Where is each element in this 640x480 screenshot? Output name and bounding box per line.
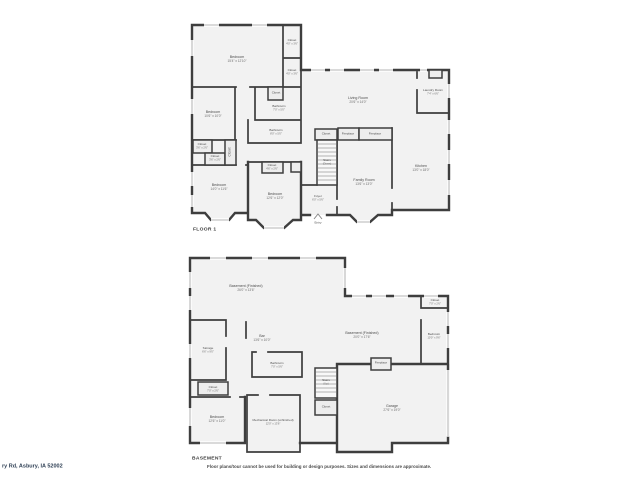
room-label-kitchen: Kitchen13'0" x 18'0" <box>412 164 429 173</box>
room-label-bathroom-1: Bathroom7'0" x 5'0" <box>272 104 285 111</box>
room-label-closet-4: Closet3'6" x 2'6" <box>196 142 208 149</box>
room-label-closet-basement-3: Closet <box>322 405 331 409</box>
room-label-bedroom-3: Bedroom14'0" x 11'6" <box>210 183 227 192</box>
label-fireplace-basement: Fireplace <box>375 361 388 365</box>
room-label-storage: Storage6'6" x 9'0" <box>202 346 214 353</box>
room-label-mechanical-room: Mechanical Room (unfinished)12'0" x 13'6… <box>252 418 293 425</box>
room-label-stairs-down: Stairs(Down) <box>323 158 332 165</box>
room-label-bedroom-2: Bedroom10'6" x 10'0" <box>204 110 221 119</box>
label-fireplace-2: Fireplace <box>369 132 382 136</box>
room-label-laundry-room: Laundry Room7'4" x 6'6" <box>423 88 443 95</box>
room-label-closet-basement-2: Closet7'0" x 2'6" <box>207 385 219 392</box>
room-label-bedroom-basement-1: Bedroom10'0" x 9'6" <box>427 332 440 339</box>
room-label-bedroom-1: Bedroom15'4" x 12'10" <box>227 55 246 64</box>
room-label-basement-finished-2: Basement (Finished)20'0" x 17'6" <box>345 331 378 340</box>
room-label-closet-3: Closet <box>272 91 281 95</box>
room-label-family-room: Family Room13'6" x 13'0" <box>353 178 374 187</box>
room-label-basement-finished-1: Basement (Finished)26'0" x 13'6" <box>229 284 262 293</box>
room-label-living-room: Living Room20'6" x 14'0" <box>348 96 368 105</box>
room-label-closet-7: Closet4'6" x 2'6" <box>266 163 278 170</box>
room-label-bathroom-2: Bathroom8'0" x 5'0" <box>269 128 282 135</box>
floorplan-page: Bedroom15'4" x 12'10" Closet4'0" x 3'6" … <box>0 0 640 480</box>
room-label-closet-5: Closet3'6" x 2'6" <box>209 154 221 161</box>
label-entry: Entry <box>314 221 321 225</box>
floor1-title: FLOOR 1 <box>193 226 216 232</box>
room-label-bedroom-4: Bedroom12'6" x 12'0" <box>266 192 283 201</box>
room-label-closet-2: Closet4'0" x 3'6" <box>286 68 298 75</box>
room-label-foyer: Foyer6'0" x 5'6" <box>312 194 324 201</box>
label-fireplace-1: Fireplace <box>342 132 355 136</box>
floorplan-drawing <box>0 0 640 480</box>
room-label-bathroom-basement: Bathroom7'0" x 5'6" <box>270 361 283 368</box>
disclaimer-text: Floor plans/tour cannot be used for buil… <box>207 464 431 469</box>
basement-title: BASEMENT <box>192 455 222 461</box>
room-label-bar: Bar13'6" x 10'0" <box>253 334 270 343</box>
room-label-bedroom-basement-2: Bedroom12'6" x 11'0" <box>208 415 225 424</box>
room-label-closet-basement-1: Closet7'0" x 2'6" <box>429 298 441 305</box>
room-label-closet-6: Closet <box>228 147 232 156</box>
room-label-closet-1: Closet4'0" x 3'6" <box>286 38 298 45</box>
room-label-closet-8: Closet <box>322 132 331 136</box>
room-label-stairs-up: Stairs(Up) <box>322 378 330 385</box>
room-label-garage: Garage27'6" x 19'0" <box>383 404 400 413</box>
property-address: ry Rd, Asbury, IA 52002 <box>2 463 63 469</box>
